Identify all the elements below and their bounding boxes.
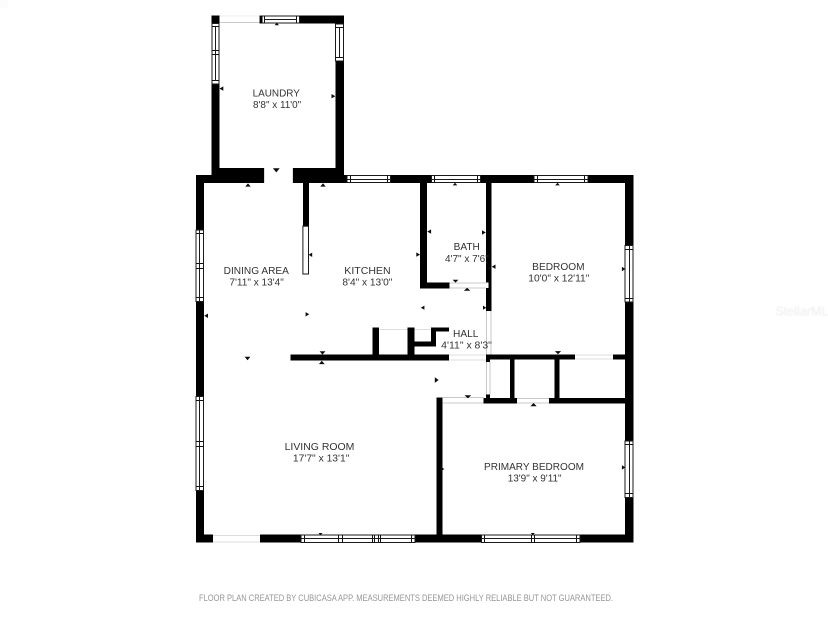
- svg-text:17'7" x 13'1": 17'7" x 13'1": [293, 454, 350, 465]
- svg-text:DINING AREA: DINING AREA: [224, 266, 290, 277]
- svg-text:LIVING ROOM: LIVING ROOM: [285, 442, 355, 453]
- svg-text:KITCHEN: KITCHEN: [344, 266, 390, 277]
- svg-text:13'9" x 9'11": 13'9" x 9'11": [508, 474, 562, 485]
- svg-text:HALL: HALL: [453, 329, 479, 340]
- svg-text:BEDROOM: BEDROOM: [532, 262, 584, 273]
- svg-text:4'7" x 7'6": 4'7" x 7'6": [445, 254, 489, 265]
- svg-text:FLOOR PLAN CREATED BY CUBICASA: FLOOR PLAN CREATED BY CUBICASA APP. MEAS…: [199, 592, 613, 603]
- svg-text:BATH: BATH: [454, 242, 480, 253]
- svg-text:4'11" x 8'3": 4'11" x 8'3": [441, 341, 492, 352]
- svg-text:7'11" x 13'4": 7'11" x 13'4": [229, 278, 284, 289]
- svg-text:8'8" x 11'0": 8'8" x 11'0": [253, 100, 302, 111]
- svg-text:PRIMARY BEDROOM: PRIMARY BEDROOM: [484, 462, 584, 473]
- svg-text:10'0" x 12'11": 10'0" x 12'11": [528, 274, 590, 285]
- svg-text:LAUNDRY: LAUNDRY: [253, 88, 301, 99]
- svg-text:StellarMLS: StellarMLS: [776, 305, 828, 319]
- svg-text:8'4" x 13'0": 8'4" x 13'0": [342, 278, 392, 289]
